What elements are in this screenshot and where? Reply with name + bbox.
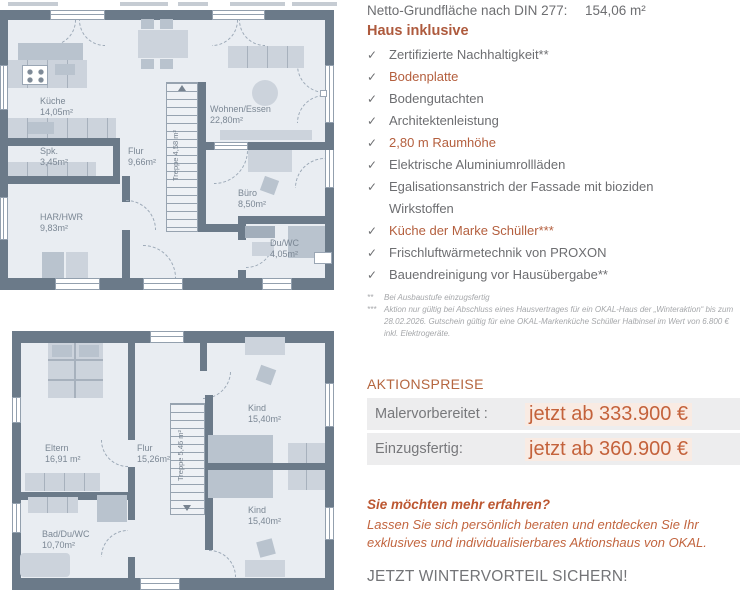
window [140,578,180,590]
round-rug [252,80,278,106]
chair [141,59,154,69]
dimension-text [178,2,208,6]
washer-dryer [42,252,64,278]
price-row: Einzugsfertig: jetzt ab 360.900 € [367,433,740,465]
checklist-item: ✓ Bodenplatte [367,66,712,88]
window [262,278,292,290]
stairs-name: Treppe [171,158,180,182]
room-label: Flur 15,26m² [137,443,170,466]
window [150,331,184,343]
footnote: *** Aktion nur gültig bei Abschluss eine… [367,304,737,340]
double-sink [28,497,78,513]
wall [200,331,207,371]
footnote: ** Bei Ausbaustufe einzugsfertig [367,292,737,304]
window [325,383,334,427]
room-label: HAR/HWR 9,83m² [40,212,83,235]
window [325,507,334,540]
net-area-value: 154,06 m² [585,3,646,18]
window [12,397,21,423]
office-desk [248,150,292,172]
cta-question: Sie möchten mehr erfahren? [367,497,550,512]
stairs-label: Treppe 5,46 m² [175,430,186,481]
inclusive-checklist: ✓ Zertifizierte Nachhaltigkeit** ✓ Boden… [367,44,712,286]
bathroom-vanity [245,226,275,238]
room-label: Flur 9,66m² [128,146,156,169]
check-icon: ✓ [367,264,389,286]
check-icon: ✓ [367,66,389,88]
checklist-item: ✓ Bauendreinigung vor Hausübergabe** [367,264,712,286]
price-value: jetzt ab 333.900 € [525,403,692,426]
cta-footer: JETZT WINTERVORTEIL SICHERN! [367,568,628,586]
room-label: Spk. 3,45m² [40,146,68,169]
wall [213,463,334,470]
chair [160,19,173,29]
kitchen-appliance [28,122,54,134]
wall [238,270,246,278]
wall [113,138,120,184]
wall [0,138,120,146]
stairs-name: Treppe [176,458,185,482]
kitchen-sink [55,64,75,75]
washer-dryer [66,252,88,278]
price-value: jetzt ab 360.900 € [525,438,692,461]
checklist-item: ✓ Egalisationsanstrich der Fassade mit b… [367,176,712,220]
child-bed [208,435,273,463]
wall [0,176,120,184]
dimension-text [8,2,58,6]
shower [97,495,127,522]
check-icon: ✓ [367,132,389,154]
door-handle [320,90,327,97]
toilet [314,252,332,264]
checklist-item: ✓ Architektenleistung [367,110,712,132]
shelf [245,337,285,355]
room-label: Kind 15,40m² [248,403,281,426]
checklist-item: ✓ Frischluftwärmetechnik von PROXON [367,242,712,264]
sofa [228,46,304,68]
wall [12,331,21,578]
checklist-item: ✓ Elektrische Aluminiumrollläden [367,154,712,176]
pillow [79,345,99,357]
room-label: Wohnen/Essen 22,80m² [210,104,271,127]
french-door [212,10,265,20]
wardrobe [25,473,100,491]
wall [205,515,213,550]
wall [128,343,135,440]
check-icon: ✓ [367,220,389,242]
window [0,65,8,110]
stove [22,65,48,85]
window [12,503,21,533]
wall [198,224,240,232]
chair [160,59,173,69]
net-area-label: Netto-Grundfläche nach DIN 277: [367,3,585,18]
dimension-text [120,2,168,6]
dimension-text [292,2,337,6]
prices-title: AKTIONSPREISE [367,376,484,392]
dimension-text [230,2,285,6]
room-label: Büro 8,50m² [238,188,266,211]
wall [128,467,135,492]
price-label: Malervorbereitet : [367,406,525,422]
checklist-item: ✓ 2,80 m Raumhöhe [367,132,712,154]
desk [288,470,325,490]
footnotes: ** Bei Ausbaustufe einzugsfertig *** Akt… [367,292,737,340]
checklist-item: ✓ Zertifizierte Nachhaltigkeit** [367,44,712,66]
doorway [214,142,248,150]
inclusive-title: Haus inklusive [367,23,469,39]
wall [128,557,135,578]
wall [122,230,130,278]
room-label: Eltern 16,91 m² [45,443,81,466]
kitchen-island-counter [8,118,116,138]
check-icon: ✓ [367,88,389,110]
child-bed [208,470,273,498]
window [0,197,8,240]
wall [198,82,206,232]
kitchen-upper-cabinets [18,43,83,60]
flyer-page: Treppe 4,58 m² Küche 14,05m² Sp [0,0,740,595]
dining-table [138,30,188,58]
shelf [245,560,285,577]
room-label: Küche 14,05m² [40,96,73,119]
chair [141,19,154,29]
french-door [50,10,105,20]
wall [238,216,334,224]
desk [288,443,325,463]
stairs-direction-arrow [178,85,186,91]
check-icon: ✓ [367,176,389,220]
stairs-area: 4,58 m² [171,130,180,155]
room-label: Kind 15,40m² [248,505,281,528]
wall [122,176,130,202]
info-panel: Netto-Grundfläche nach DIN 277:154,06 m²… [362,0,740,595]
check-icon: ✓ [367,44,389,66]
upper-floor-plan: Treppe 5,46 m² Eltern 16,91 m² Flur 15,2… [0,325,352,595]
check-icon: ✓ [367,110,389,132]
ground-floor-plan: Treppe 4,58 m² Küche 14,05m² Sp [0,0,352,300]
stairs-label: Treppe 4,58 m² [170,130,181,181]
bathtub [20,553,70,577]
pillow [52,345,72,357]
window [325,148,334,188]
price-row: Malervorbereitet : jetzt ab 333.900 € [367,398,740,430]
wall [128,500,135,520]
room-label: Bad/Du/WC 10,70m² [42,529,90,552]
stairs-direction-arrow [183,505,191,511]
checklist-item: ✓ Küche der Marke Schüller*** [367,220,712,242]
checklist-item: ✓ Bodengutachten [367,88,712,110]
price-table: Malervorbereitet : jetzt ab 333.900 € Ei… [367,398,740,468]
price-label: Einzugsfertig: [367,441,525,457]
stairs-area: 5,46 m² [176,430,185,455]
window [55,278,100,290]
entry-door [143,278,183,290]
check-icon: ✓ [367,154,389,176]
cta-body: Lassen Sie sich persönlich beraten und e… [367,516,729,551]
wall [325,331,334,578]
check-icon: ✓ [367,242,389,264]
sideboard [220,130,312,140]
room-label: Du/WC 4,05m² [270,238,299,261]
net-area-line: Netto-Grundfläche nach DIN 277:154,06 m² [367,3,646,18]
